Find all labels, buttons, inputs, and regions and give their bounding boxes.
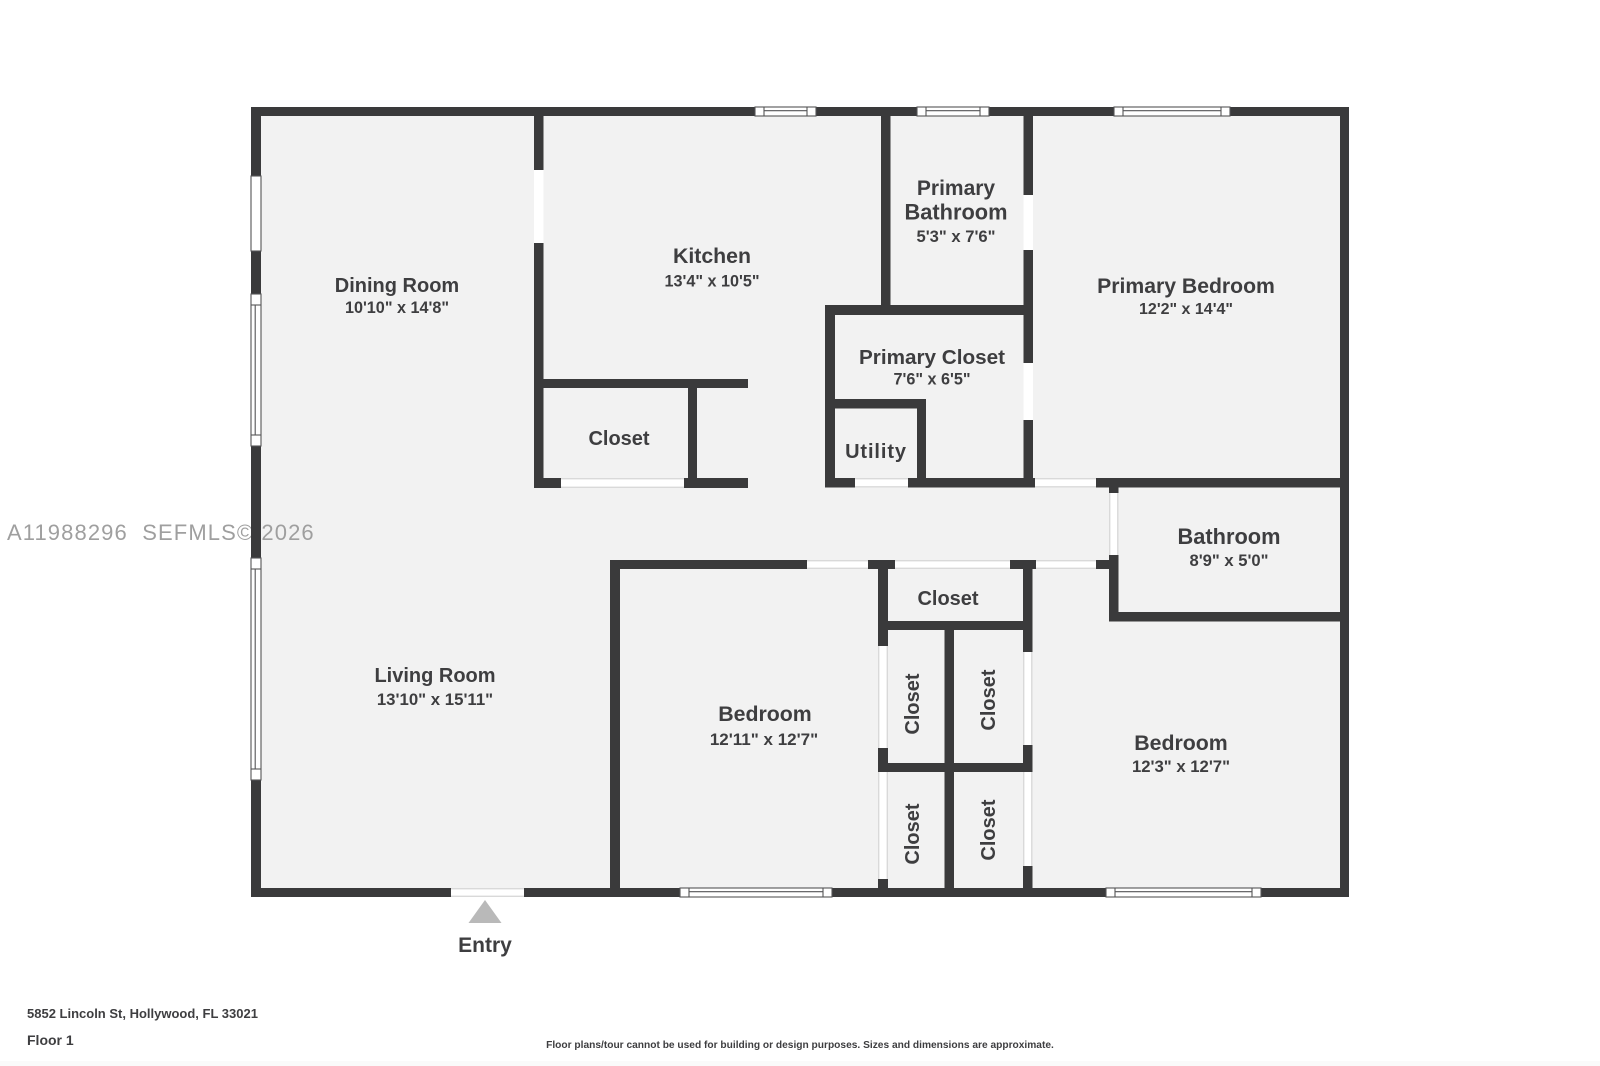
svg-text:Entry: Entry [458, 934, 512, 957]
svg-text:Dining Room: Dining Room [335, 275, 459, 297]
svg-text:Closet: Closet [978, 669, 1000, 730]
svg-text:Closet: Closet [902, 803, 924, 864]
svg-text:Closet: Closet [902, 673, 924, 734]
svg-text:Primary: Primary [917, 177, 996, 200]
svg-text:5852 Lincoln St, Hollywood, FL: 5852 Lincoln St, Hollywood, FL 33021 [27, 1006, 258, 1021]
svg-text:12'2" x 14'4": 12'2" x 14'4" [1139, 301, 1233, 318]
svg-text:8'9" x 5'0": 8'9" x 5'0" [1190, 551, 1269, 570]
svg-text:Closet: Closet [978, 799, 1000, 860]
svg-text:Floor plans/tour cannot be use: Floor plans/tour cannot be used for buil… [546, 1040, 1054, 1051]
svg-text:5'3" x 7'6": 5'3" x 7'6" [917, 227, 996, 246]
svg-text:12'3" x 12'7": 12'3" x 12'7" [1132, 757, 1230, 776]
svg-text:Bedroom: Bedroom [718, 702, 811, 726]
svg-text:Primary Closet: Primary Closet [859, 346, 1005, 369]
svg-text:Bedroom: Bedroom [1134, 731, 1227, 755]
svg-text:Closet: Closet [917, 588, 978, 610]
svg-text:12'11" x 12'7": 12'11" x 12'7" [710, 730, 818, 749]
svg-text:7'6" x 6'5": 7'6" x 6'5" [893, 371, 970, 389]
svg-text:A11988296 SEFMLS© 2026: A11988296 SEFMLS© 2026 [7, 520, 315, 545]
svg-text:Kitchen: Kitchen [673, 244, 751, 268]
svg-text:Bathroom: Bathroom [905, 200, 1008, 225]
svg-text:13'10" x 15'11": 13'10" x 15'11" [377, 690, 493, 709]
svg-text:Floor 1: Floor 1 [27, 1032, 74, 1048]
svg-text:10'10" x 14'8": 10'10" x 14'8" [345, 299, 449, 317]
svg-text:Living Room: Living Room [374, 665, 495, 687]
svg-text:Closet: Closet [588, 428, 649, 450]
svg-text:Bathroom: Bathroom [1178, 524, 1281, 549]
svg-text:Primary Bedroom: Primary Bedroom [1097, 275, 1275, 298]
svg-text:13'4" x 10'5": 13'4" x 10'5" [664, 273, 759, 291]
svg-text:Utility: Utility [845, 441, 907, 463]
